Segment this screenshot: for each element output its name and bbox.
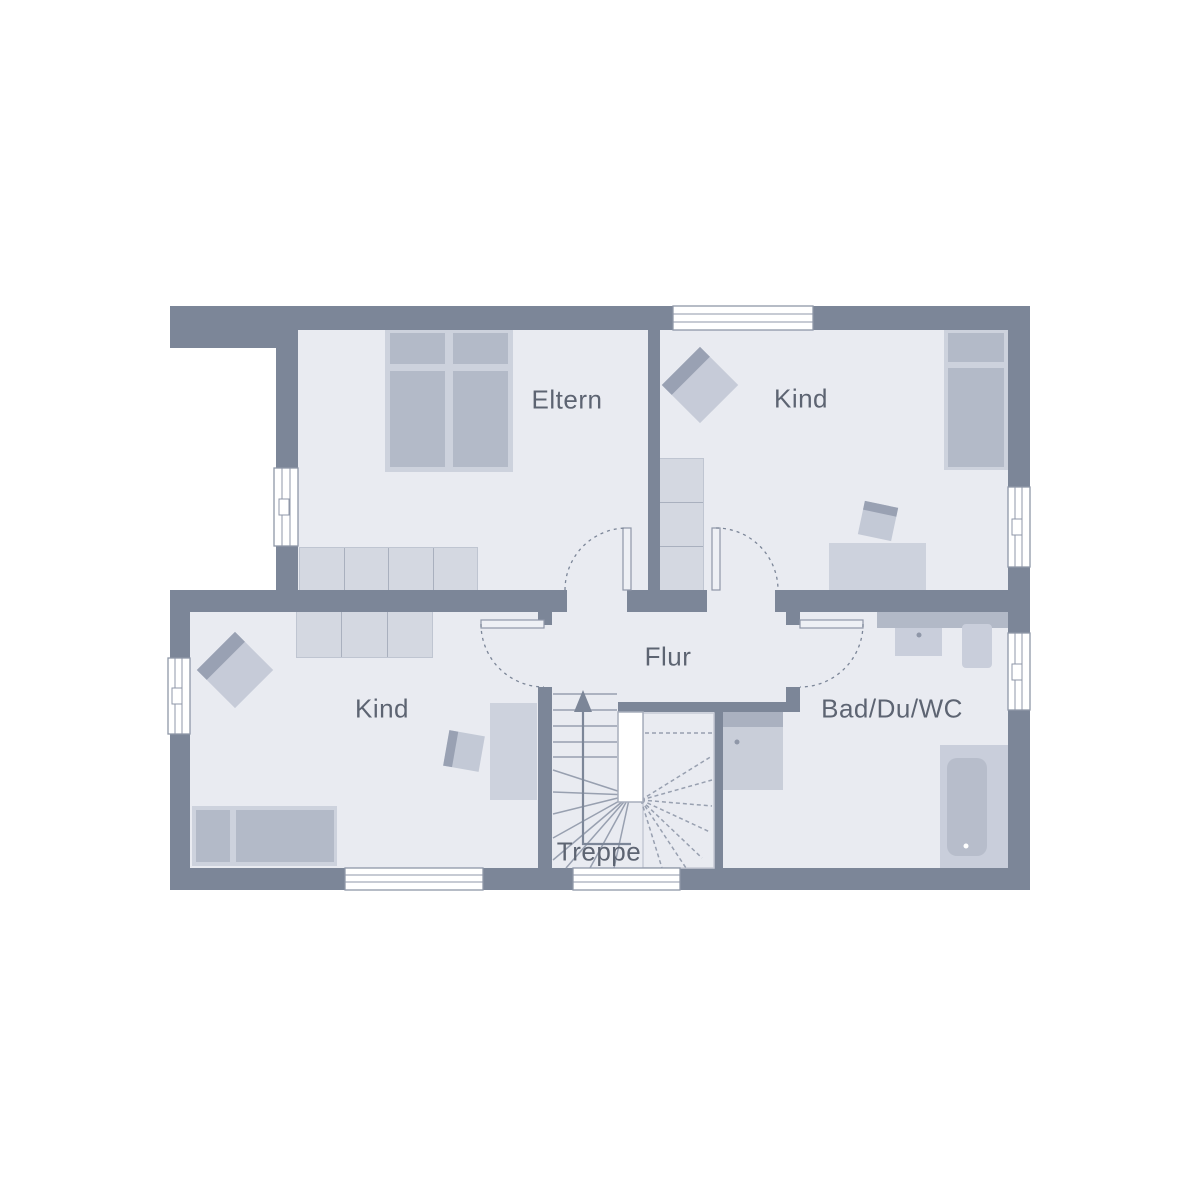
floor-plan: Eltern Kind Kind Flur Bad/Du/WC Treppe (0, 0, 1200, 1200)
window-bad-east (1008, 633, 1030, 710)
door-kind-bottom (481, 620, 544, 687)
room-label-kind-top: Kind (774, 384, 828, 415)
stairs-upper-flight (641, 733, 712, 868)
stair-void (618, 712, 643, 802)
room-label-bad: Bad/Du/WC (821, 694, 963, 725)
door-eltern (565, 528, 631, 590)
basin-faucet-dot (917, 633, 922, 638)
window-kind-top (673, 306, 813, 330)
room-label-treppe: Treppe (557, 837, 641, 868)
room-label-eltern: Eltern (532, 385, 603, 416)
window-kind-east (1008, 487, 1030, 567)
shower-drain-dot (735, 740, 740, 745)
stairs-upper-outline (643, 713, 714, 868)
room-label-flur: Flur (645, 642, 692, 673)
window-treppe-south (573, 868, 680, 890)
tub-drain-dot (964, 844, 969, 849)
window-kind-bottom-west (168, 658, 190, 734)
plan-linework (0, 0, 1200, 1200)
window-eltern-west (274, 468, 298, 546)
window-kind-bottom-south (345, 868, 483, 890)
door-kind-top (712, 528, 778, 590)
door-bad (800, 620, 863, 687)
room-label-kind-bottom: Kind (355, 694, 409, 725)
